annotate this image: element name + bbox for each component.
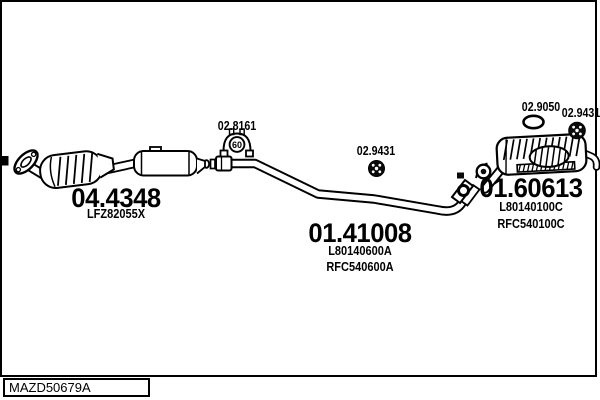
clamp-diameter-label: 60 bbox=[232, 140, 242, 150]
oem-code-rear-silencer-1: L80140100C bbox=[499, 201, 563, 214]
part-number-rear-silencer[interactable]: 01.60613 bbox=[479, 175, 582, 202]
drawing-code-box: MAZD50679A bbox=[3, 378, 150, 397]
mid-resonator-body[interactable] bbox=[134, 147, 205, 176]
part-number-gasket[interactable]: 02.9050 bbox=[522, 101, 560, 114]
exhaust-parts-diagram: 60 bbox=[0, 0, 600, 400]
oem-code-rear-silencer-2: RFC540100C bbox=[497, 218, 564, 231]
rear-silencer-body[interactable] bbox=[496, 134, 587, 176]
oem-code-centre-pipe-1: L80140600A bbox=[328, 245, 392, 258]
frame-marker bbox=[0, 156, 9, 166]
drawing-code: MAZD50679A bbox=[9, 380, 91, 395]
part-number-centre-pipe[interactable]: 01.41008 bbox=[308, 220, 411, 247]
oem-code-centre-pipe-2: RFC540600A bbox=[326, 261, 393, 274]
gasket-icon[interactable] bbox=[524, 116, 544, 128]
clamp-icon[interactable]: 60 bbox=[221, 129, 254, 157]
pipe-connector-sleeve bbox=[211, 157, 232, 171]
rubber-hanger-centre-icon[interactable] bbox=[369, 161, 385, 177]
part-number-hanger-rear[interactable]: 02.9431 bbox=[562, 107, 600, 120]
rubber-hanger-rear-icon[interactable] bbox=[569, 122, 586, 139]
oem-code-catalytic: LFZ82055X bbox=[87, 208, 145, 221]
part-number-hanger-centre[interactable]: 02.9431 bbox=[357, 145, 395, 158]
part-number-clamp[interactable]: 02.8161 bbox=[217, 120, 255, 133]
